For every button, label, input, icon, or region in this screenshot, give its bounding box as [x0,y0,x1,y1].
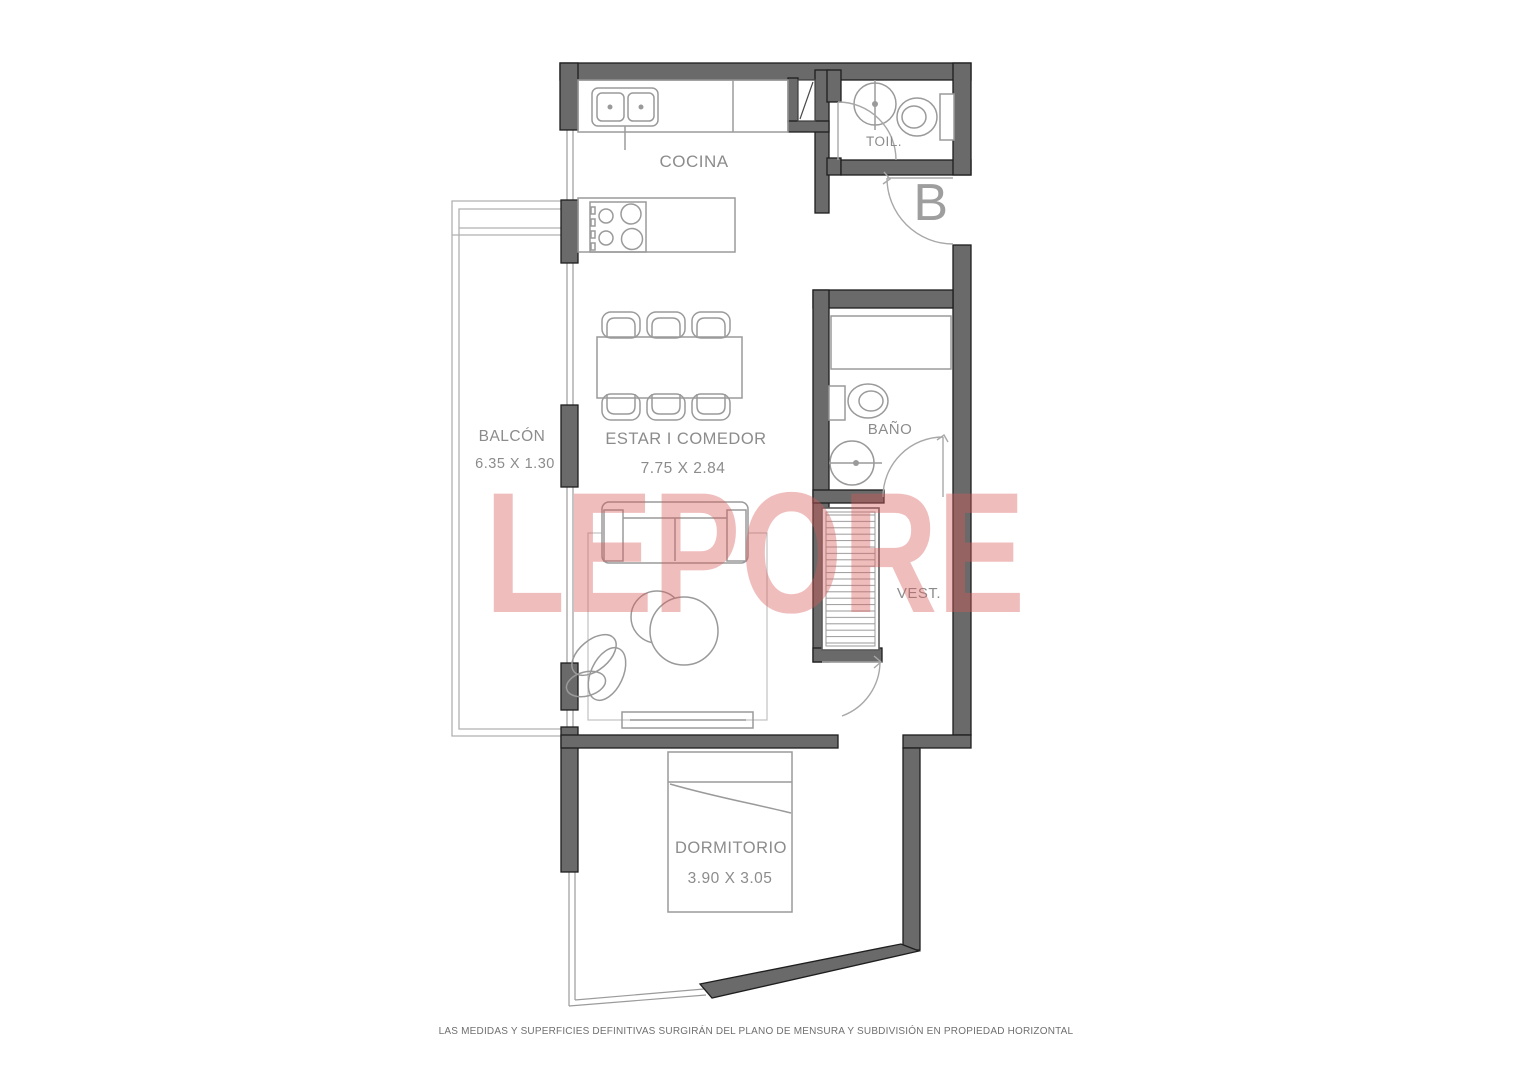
wall-toil-left-top [827,70,841,102]
wall-bedroom-left [561,727,578,872]
bedroom-door-swing [842,662,880,716]
disclaimer-text: LAS MEDIDAS Y SUPERFICIES DEFINITIVAS SU… [439,1024,1074,1037]
floor-plan-canvas: COCINA TOIL. B BAÑO VEST. BALCÓN 6.35 X … [0,0,1527,1080]
wall-living-bottom [561,735,838,748]
room-label-balcon: BALCÓN [479,428,546,445]
floor-plan-page: COCINA TOIL. B BAÑO VEST. BALCÓN 6.35 X … [0,0,1527,1080]
wall-top [560,63,971,80]
dining-table [597,337,742,398]
dining-chair [602,312,640,338]
wall-bano-top [813,290,953,308]
wall-right-top [953,63,971,175]
wall-diagonal [700,944,919,998]
toil-toilet-tank [940,94,954,140]
bedroom-furniture [668,752,792,912]
wall-toil-bottom [841,160,971,175]
bano-toilet-tank [829,386,845,420]
shower [831,316,951,369]
wall-shaft-cap [788,121,829,132]
room-label-dormitorio: DORMITORIO [675,839,787,857]
wall-toil-left-stub [827,158,841,175]
toilette-fixtures [854,80,954,140]
dining-chair [647,394,685,420]
wall-right-lower [903,748,920,950]
bed [668,752,792,912]
dining-chair [647,312,685,338]
window-frame-a [561,200,578,263]
dining-chair [692,394,730,420]
wall-top-left-pillar [560,63,578,130]
room-dims-dormitorio: 3.90 X 3.05 [688,870,773,887]
service-shaft [798,80,815,121]
wall-shaft-left [788,78,798,122]
unit-letter: B [913,174,948,232]
wall-right-jog [903,735,971,748]
room-label-bano: BAÑO [868,421,913,438]
dining-chair [692,312,730,338]
dining-chair [602,394,640,420]
lepore-watermark: LEPORE [485,457,1025,649]
room-label-toilette: TOIL. [866,134,902,149]
room-label-estar-comedor: ESTAR I COMEDOR [605,430,766,448]
room-label-cocina: COCINA [659,152,728,171]
